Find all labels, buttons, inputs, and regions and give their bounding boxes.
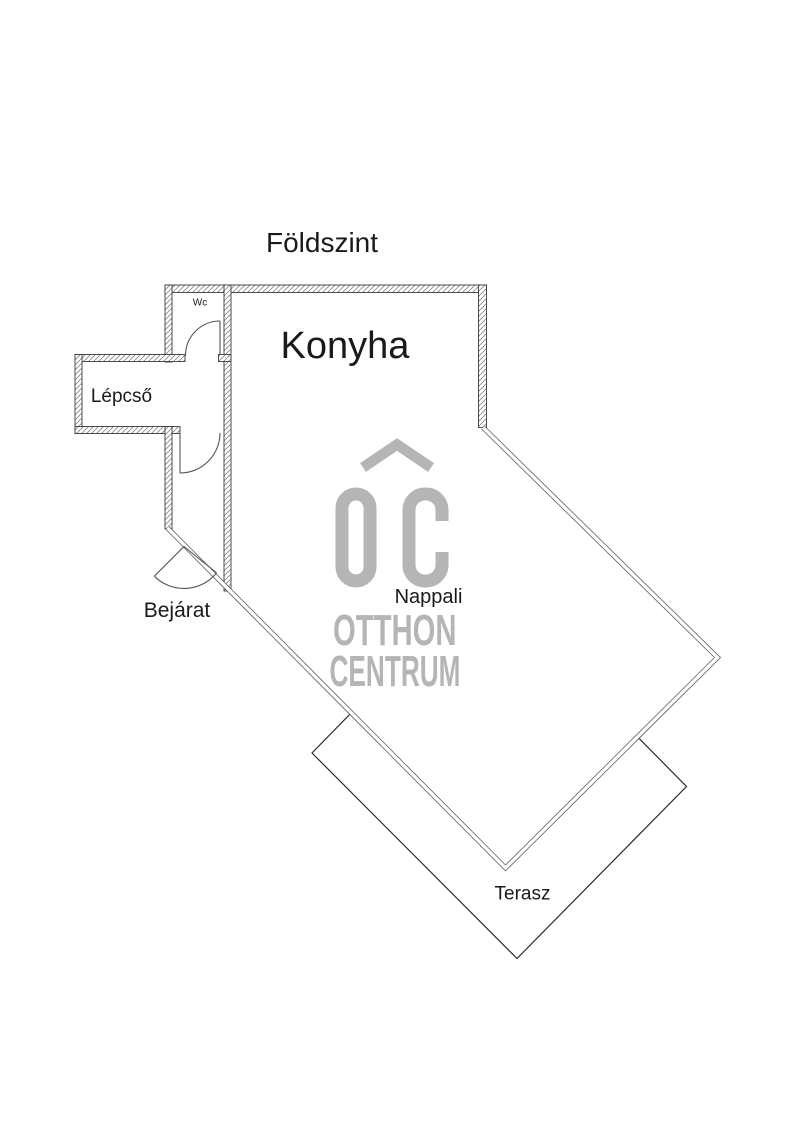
wall-wc-bottom-right bbox=[219, 355, 232, 362]
wall-left-upper bbox=[165, 285, 172, 362]
room-label-terasz: Terasz bbox=[495, 884, 551, 905]
wall-corridor-left bbox=[75, 355, 82, 434]
wall-top bbox=[165, 285, 487, 293]
room-label-konyha: Konyha bbox=[281, 325, 411, 367]
wall-corridor-top bbox=[75, 355, 185, 362]
page-title: Földszint bbox=[266, 227, 378, 258]
room-label-wc: Wc bbox=[193, 298, 207, 309]
floor-plan-page: Földszint Wc bbox=[0, 0, 793, 1122]
floor-plan-drawing: Földszint Wc bbox=[0, 0, 793, 1122]
wall-hall-left-lower bbox=[165, 427, 172, 530]
wall-right bbox=[479, 285, 487, 428]
room-label-bejarat: Bejárat bbox=[144, 599, 211, 622]
wall-hall-right bbox=[224, 285, 231, 591]
room-label-lepcso: Lépcső bbox=[91, 386, 152, 407]
wall-corridor-bottom bbox=[75, 427, 180, 434]
watermark-line-centrum: CENTRUM bbox=[330, 647, 461, 696]
watermark-logo: OC OTTHON CENTRUM bbox=[304, 445, 484, 697]
